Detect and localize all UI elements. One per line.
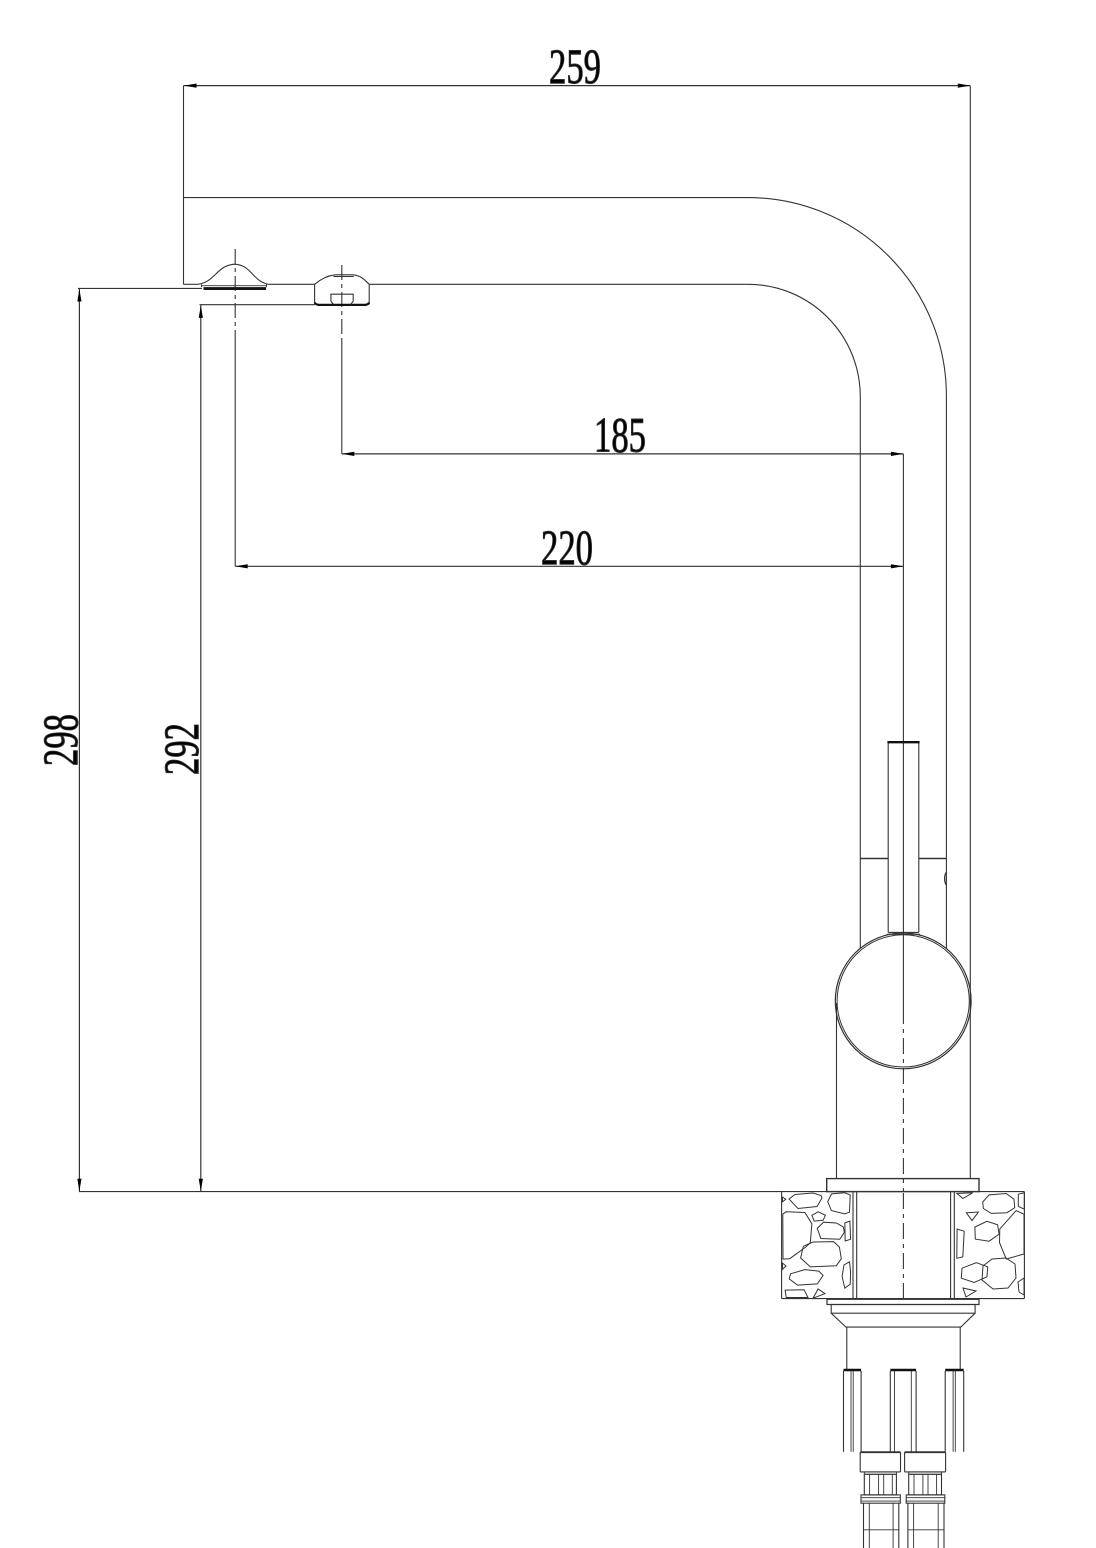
svg-text:185: 185 (594, 407, 646, 463)
svg-text:298: 298 (32, 714, 88, 766)
svg-text:220: 220 (541, 519, 593, 575)
svg-text:259: 259 (549, 38, 601, 94)
svg-text:292: 292 (153, 723, 209, 775)
